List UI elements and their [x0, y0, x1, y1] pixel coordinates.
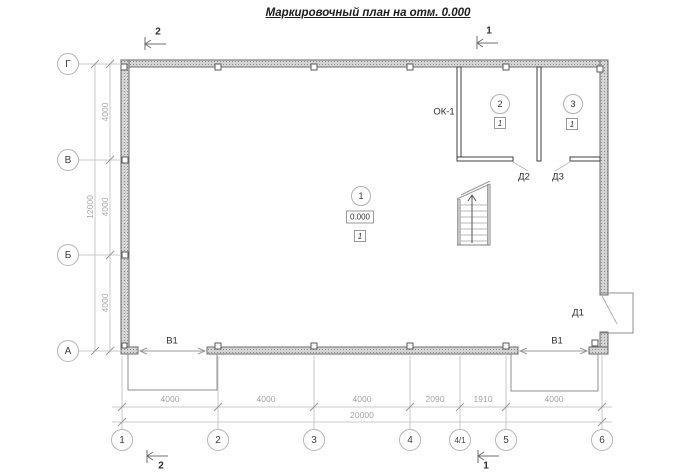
dim-bottom-4: 2090 — [426, 394, 445, 404]
floor-plan-drawing: Маркировочный план на отм. 0.000 Г В Б А… — [0, 0, 700, 474]
dim-bottom-2: 4000 — [257, 394, 276, 404]
dim-bottom-1: 4000 — [161, 394, 180, 404]
window-label-ok1: ОК-1 — [433, 107, 454, 118]
interior-walls — [457, 67, 600, 161]
dim-left-1: 4000 — [100, 103, 110, 122]
room-2-number: 2 — [490, 94, 510, 114]
section-number-bottom-right: 1 — [483, 461, 489, 472]
level-mark: 0.000 — [346, 211, 374, 224]
door-leaders — [513, 162, 570, 171]
floor-mark-room-1: 1 — [354, 230, 366, 242]
room-3-number: 3 — [563, 94, 583, 114]
exterior-walls — [121, 60, 608, 354]
dim-bottom-5: 1910 — [474, 394, 493, 404]
section-number-bottom-left: 2 — [158, 461, 164, 472]
gate-label-v1-left: В1 — [166, 336, 178, 347]
axis-col-2: 2 — [207, 429, 229, 451]
door-label-d1: Д1 — [572, 308, 584, 319]
section-number-top-right: 1 — [486, 26, 492, 37]
room-1-number: 1 — [351, 186, 371, 206]
door-label-d3: Д3 — [552, 172, 564, 183]
axis-row-a: А — [57, 340, 79, 362]
dim-left-2: 4000 — [100, 198, 110, 217]
column-markers — [121, 64, 603, 349]
axis-col-6: 6 — [591, 429, 613, 451]
gate-label-v1-right: В1 — [551, 336, 563, 347]
axis-row-b: Б — [57, 244, 79, 266]
dim-left-3: 4000 — [100, 294, 110, 313]
dim-bottom-3: 4000 — [353, 394, 372, 404]
section-number-top-left: 2 — [155, 27, 161, 38]
drawing-title: Маркировочный план на отм. 0.000 — [266, 7, 471, 19]
door-label-d2: Д2 — [518, 172, 530, 183]
dim-bottom-total: 20000 — [350, 410, 374, 420]
axis-row-v: В — [57, 149, 79, 171]
staircase — [457, 181, 490, 245]
axis-col-3: 3 — [303, 429, 325, 451]
axis-col-1: 1 — [111, 429, 133, 451]
floor-mark-room-3: 1 — [566, 118, 578, 130]
entrance-d1 — [600, 293, 633, 333]
porch-outlines — [128, 354, 598, 391]
section-mark-lines — [145, 36, 499, 463]
axis-row-g: Г — [57, 53, 79, 75]
dim-left-total: 12000 — [85, 195, 95, 219]
axis-col-5: 5 — [495, 429, 517, 451]
axis-col-4: 4 — [399, 429, 421, 451]
axis-col-4-1: 4/1 — [449, 429, 471, 451]
plan-linework — [0, 0, 700, 474]
floor-mark-room-2: 1 — [494, 117, 506, 129]
dim-bottom-6: 4000 — [545, 394, 564, 404]
